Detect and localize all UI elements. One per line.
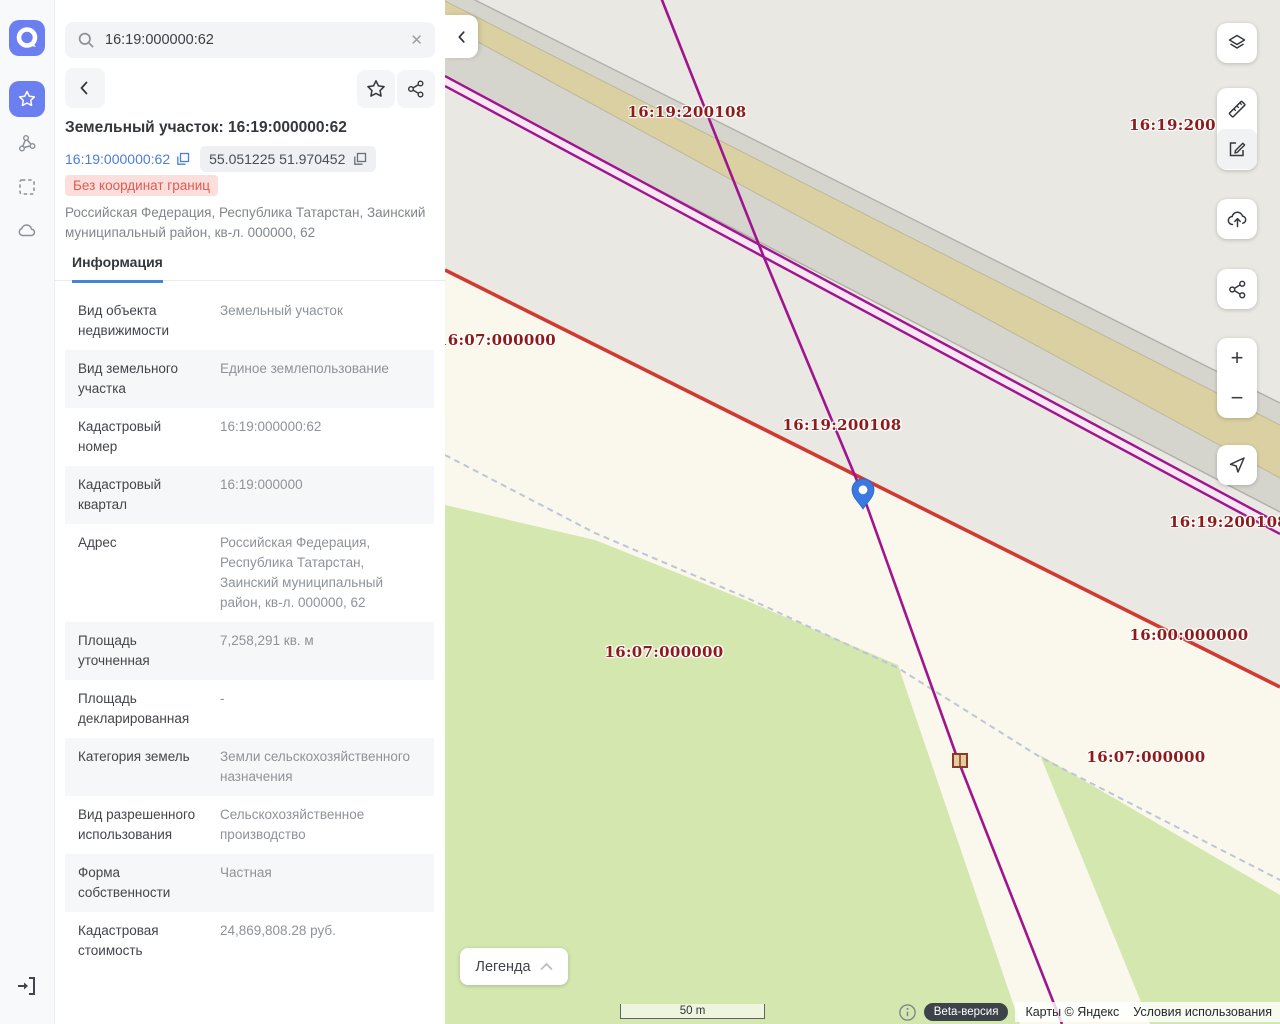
info-row-value: Частная [220, 863, 426, 903]
info-row-label: Кадастровая стоимость [78, 921, 204, 961]
layers-button[interactable] [1217, 23, 1257, 63]
info-table: Вид объекта недвижимостиЗемельный участо… [65, 292, 434, 970]
info-row: Вид объекта недвижимостиЗемельный участо… [65, 292, 434, 350]
sidebar-item-objects[interactable] [14, 131, 40, 157]
cadastral-quarter-label: 16:07:000000 [604, 643, 723, 661]
info-row-label: Вид земельного участка [78, 359, 204, 399]
map-canvas [445, 0, 1280, 1024]
info-row-label: Категория земель [78, 747, 204, 787]
scale-label: 50 m [680, 1005, 706, 1017]
detail-panel: ✕ Земельный участок: 16:19:000000:62 [55, 0, 445, 1024]
cadastral-quarter-label: 16:19:200108 [1169, 513, 1280, 531]
search-input[interactable] [105, 32, 400, 48]
draw-button[interactable] [1217, 129, 1257, 169]
share-icon [1227, 279, 1248, 300]
chevron-up-icon [540, 962, 553, 971]
zoom-out-button[interactable]: − [1217, 378, 1257, 418]
info-row: АдресРоссийская Федерация, Республика Та… [65, 524, 434, 622]
info-row: Кадастровый номер16:19:000000:62 [65, 408, 434, 466]
search-bar[interactable]: ✕ [65, 22, 435, 58]
info-row-value: 16:19:000000:62 [220, 417, 426, 457]
chevron-left-icon [454, 29, 470, 45]
info-row: Форма собственностиЧастная [65, 854, 434, 912]
navigation-arrow-icon [1226, 454, 1248, 476]
info-row-value: Российская Федерация, Республика Татарст… [220, 533, 426, 613]
info-row-value: 16:19:000000 [220, 475, 426, 515]
cadastral-quarter-label: 16:19:200108 [627, 103, 746, 121]
info-row-value: 7,258,291 кв. м [220, 631, 426, 671]
cadastral-quarter-label: 16:07:000000 [445, 331, 556, 349]
sidebar-item-cloud[interactable] [14, 218, 40, 244]
edit-icon [1226, 138, 1248, 160]
share-object-button[interactable] [397, 70, 435, 108]
beta-badge: Beta-версия [924, 1003, 1009, 1021]
chevron-left-icon [76, 79, 94, 97]
scale-bar: 50 m [620, 1004, 765, 1019]
ruler-icon [1226, 98, 1248, 120]
logo-a-icon [9, 20, 45, 56]
coordinates-text: 55.051225 51.970452 [209, 151, 345, 167]
sidebar-rail [0, 0, 55, 1024]
info-row-label: Площадь декларированная [78, 689, 204, 729]
info-row-value: Земли сельскохозяйственного назначения [220, 747, 426, 787]
legend-label: Легенда [475, 959, 530, 975]
cadastral-number-text: 16:19:000000:62 [65, 151, 170, 167]
info-row-label: Кадастровый номер [78, 417, 204, 457]
zoom-in-button[interactable]: + [1217, 338, 1257, 378]
coordinates-chip[interactable]: 55.051225 51.970452 [200, 146, 376, 172]
map-viewport[interactable]: 16:19:20010816:19:20010816:07:00000016:1… [445, 0, 1280, 1024]
favorite-button[interactable] [357, 70, 395, 108]
info-row-label: Кадастровый квартал [78, 475, 204, 515]
info-row-value: Единое землепользование [220, 359, 426, 399]
star-outline-icon [365, 78, 387, 100]
info-row: Площадь уточненная7,258,291 кв. м [65, 622, 434, 680]
copy-icon[interactable] [353, 152, 367, 166]
star-icon [17, 89, 37, 109]
cadastral-quarter-label: 16:00:000000 [1129, 626, 1248, 644]
info-row: Площадь декларированная- [65, 680, 434, 738]
cloud-icon [15, 219, 39, 243]
terms-of-use-link[interactable]: Условия использования [1133, 1005, 1272, 1019]
upload-button[interactable] [1217, 199, 1257, 239]
clear-search-icon[interactable]: ✕ [410, 31, 423, 49]
info-icon[interactable] [898, 1003, 917, 1022]
exit-icon [14, 973, 40, 999]
map-attribution: Beta-версия Карты © Яндекс Условия испол… [898, 1002, 1280, 1022]
collapse-panel-button[interactable] [445, 15, 478, 58]
tab-information[interactable]: Информация [72, 254, 163, 283]
search-icon [77, 31, 95, 49]
yandex-maps-credit[interactable]: Карты © Яндекс [1025, 1005, 1119, 1019]
attribution-strip: Карты © Яндекс Условия использования [1015, 1002, 1280, 1022]
polygon-nodes-icon [15, 132, 39, 156]
cadastral-map-app: ✕ Земельный участок: 16:19:000000:62 [0, 0, 1280, 1024]
copy-icon[interactable] [176, 152, 190, 166]
info-row-label: Вид разрешенного использования [78, 805, 204, 845]
info-row-label: Адрес [78, 533, 204, 613]
info-row-value: Сельскохозяйственное производство [220, 805, 426, 845]
object-identifiers: 16:19:000000:62 55.051225 51.970452 [65, 146, 376, 172]
location-pin [848, 476, 878, 510]
app-logo[interactable] [9, 20, 45, 56]
info-row-label: Вид объекта недвижимости [78, 301, 204, 341]
plus-icon: + [1231, 347, 1244, 369]
cadastral-quarter-label: 16:07:000000 [1086, 748, 1205, 766]
info-row-label: Площадь уточненная [78, 631, 204, 671]
dashed-square-icon [16, 176, 38, 198]
info-row-value: Земельный участок [220, 301, 426, 341]
info-row: Категория земельЗемли сельскохозяйственн… [65, 738, 434, 796]
tab-bar: Информация [55, 250, 445, 281]
back-button[interactable] [65, 68, 105, 108]
measure-button[interactable] [1217, 89, 1257, 129]
no-borders-badge: Без координат границ [65, 175, 218, 196]
info-row: Кадастровая стоимость24,869,808.28 руб. [65, 912, 434, 970]
share-icon [406, 79, 426, 99]
layers-icon [1226, 32, 1248, 54]
info-row: Вид земельного участкаЕдиное землепользо… [65, 350, 434, 408]
sidebar-exit-button[interactable] [14, 973, 40, 999]
sidebar-item-favorites[interactable] [9, 81, 45, 117]
object-title: Земельный участок: 16:19:000000:62 [65, 119, 440, 137]
minus-icon: − [1231, 387, 1244, 409]
sidebar-item-area-select[interactable] [14, 174, 40, 200]
locate-button[interactable] [1217, 445, 1257, 485]
info-row-value: 24,869,808.28 руб. [220, 921, 426, 961]
info-row-label: Форма собственности [78, 863, 204, 903]
cadastral-number-link[interactable]: 16:19:000000:62 [65, 151, 190, 167]
info-row-value: - [220, 689, 426, 729]
object-address: Российская Федерация, Республика Татарст… [65, 203, 437, 243]
cadastral-quarter-label: 16:19:200108 [782, 416, 901, 434]
share-map-button[interactable] [1217, 269, 1257, 309]
cloud-upload-icon [1226, 208, 1249, 231]
info-row: Вид разрешенного использованияСельскохоз… [65, 796, 434, 854]
zoom-controls: + − [1217, 338, 1257, 418]
legend-button[interactable]: Легенда [460, 948, 568, 985]
info-row: Кадастровый квартал16:19:000000 [65, 466, 434, 524]
measure-edit-group [1217, 88, 1257, 170]
